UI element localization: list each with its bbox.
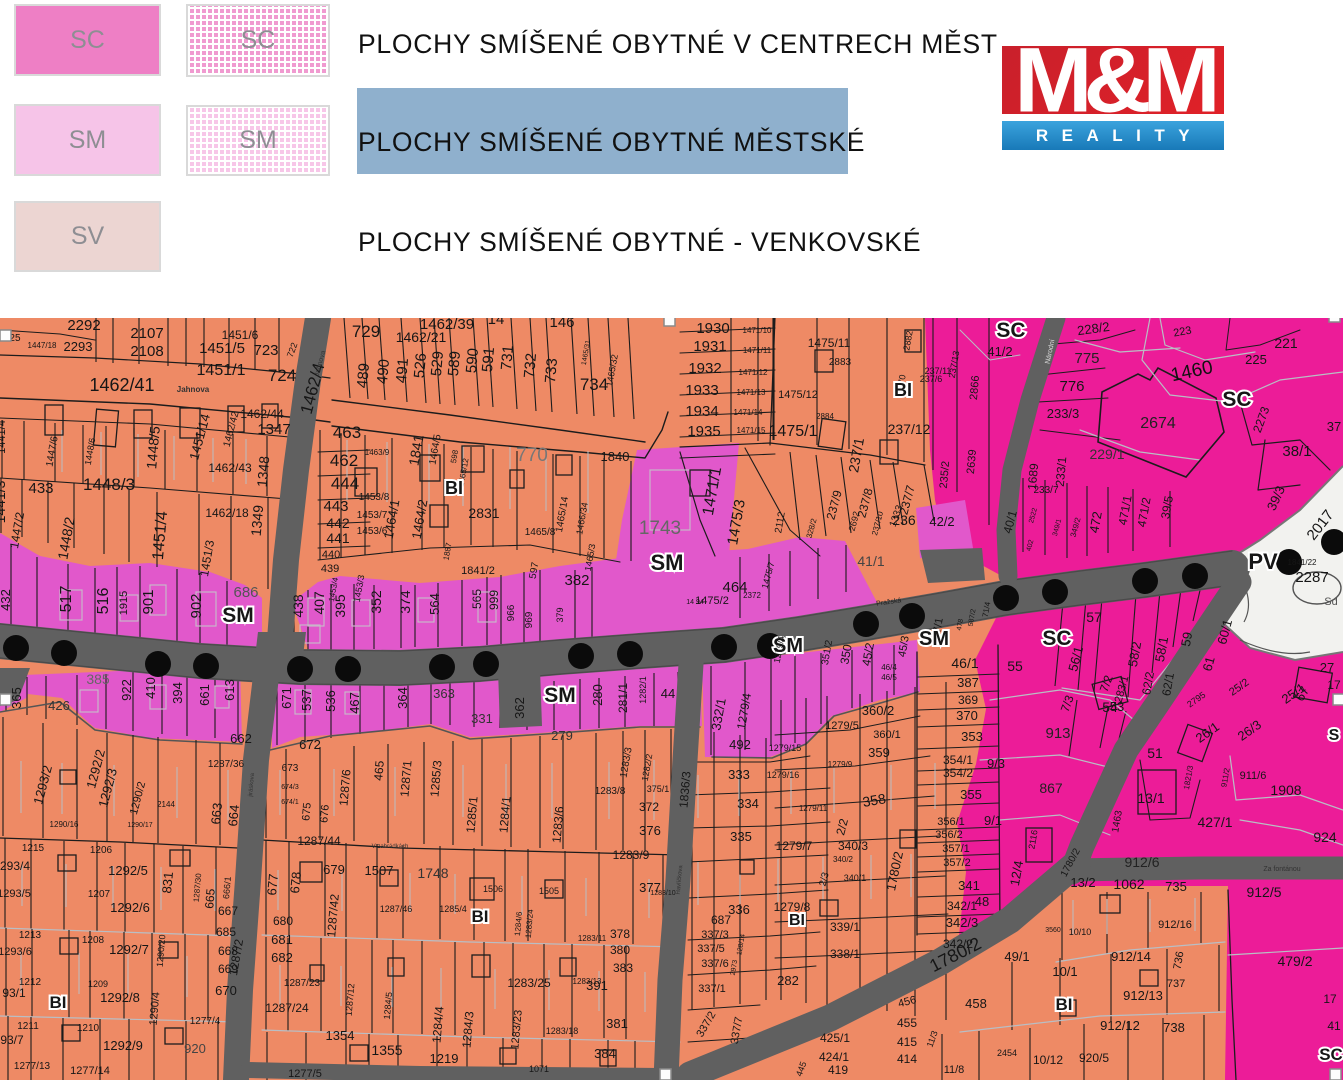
svg-text:731: 731 (498, 344, 517, 370)
svg-text:1283/9: 1283/9 (613, 848, 650, 862)
svg-text:491: 491 (393, 357, 412, 383)
svg-text:1283/10: 1283/10 (650, 890, 675, 897)
svg-text:1279/15: 1279/15 (769, 743, 802, 753)
svg-text:681: 681 (271, 932, 293, 947)
svg-text:738: 738 (1163, 1020, 1185, 1035)
svg-text:372: 372 (639, 800, 659, 814)
svg-text:340/3: 340/3 (838, 839, 868, 853)
svg-text:1277/14: 1277/14 (70, 1065, 110, 1077)
svg-text:1285/4: 1285/4 (439, 904, 467, 914)
svg-text:685: 685 (216, 925, 236, 939)
svg-text:357/1: 357/1 (942, 843, 970, 855)
svg-text:1211: 1211 (17, 1021, 39, 1032)
svg-text:9/1: 9/1 (984, 813, 1002, 828)
svg-text:1283/18: 1283/18 (546, 1026, 579, 1036)
svg-text:SC: SC (1042, 627, 1071, 650)
svg-text:17: 17 (1323, 992, 1337, 1006)
svg-text:1283/8: 1283/8 (595, 786, 626, 797)
svg-text:1933: 1933 (685, 382, 718, 399)
svg-text:686: 686 (233, 584, 258, 601)
svg-text:1465/8: 1465/8 (525, 527, 556, 538)
svg-text:1062: 1062 (1113, 876, 1144, 892)
svg-text:676: 676 (318, 804, 332, 823)
svg-text:536: 536 (323, 690, 338, 712)
svg-text:337/5: 337/5 (697, 943, 725, 955)
svg-text:13/1: 13/1 (1137, 790, 1164, 806)
svg-text:516: 516 (95, 588, 112, 615)
svg-text:359: 359 (868, 745, 890, 760)
svg-text:1213: 1213 (19, 930, 42, 941)
svg-text:334: 334 (737, 796, 759, 811)
svg-text:724: 724 (268, 366, 296, 385)
svg-text:1471/12: 1471/12 (739, 368, 768, 377)
svg-text:353: 353 (961, 729, 983, 744)
svg-text:374: 374 (397, 590, 413, 614)
svg-text:537: 537 (299, 689, 314, 711)
svg-text:2293: 2293 (64, 339, 93, 354)
svg-text:57: 57 (1086, 609, 1102, 625)
svg-text:381: 381 (606, 1016, 628, 1031)
svg-text:1462/18: 1462/18 (205, 506, 249, 520)
svg-text:10/10: 10/10 (1069, 927, 1092, 937)
svg-text:1915: 1915 (118, 591, 130, 615)
svg-text:1462/43: 1462/43 (208, 461, 252, 475)
svg-text:911/6: 911/6 (1240, 770, 1267, 782)
svg-text:517: 517 (58, 586, 75, 613)
svg-text:1471/14: 1471/14 (734, 408, 763, 417)
svg-text:27: 27 (1320, 660, 1334, 675)
svg-text:440: 440 (322, 549, 340, 561)
svg-text:1287/46: 1287/46 (380, 904, 413, 914)
svg-text:354/1: 354/1 (943, 753, 973, 767)
svg-text:59: 59 (1178, 631, 1195, 648)
svg-text:2454: 2454 (997, 1048, 1017, 1058)
svg-text:331: 331 (471, 711, 493, 726)
svg-text:337/6: 337/6 (701, 958, 729, 970)
svg-text:1293/5: 1293/5 (0, 888, 31, 900)
svg-text:1462/41: 1462/41 (89, 375, 154, 395)
svg-text:1932: 1932 (688, 360, 721, 377)
svg-text:737: 737 (1167, 978, 1185, 990)
svg-text:673: 673 (282, 763, 299, 774)
svg-text:913: 913 (1045, 725, 1070, 742)
svg-text:233/7: 233/7 (1033, 485, 1058, 496)
svg-text:SM: SM (544, 684, 576, 707)
svg-text:44: 44 (661, 686, 675, 701)
svg-text:677: 677 (264, 873, 281, 896)
svg-text:1451/5: 1451/5 (199, 340, 245, 357)
svg-text:1292/6: 1292/6 (110, 900, 150, 915)
svg-text:1290/17: 1290/17 (127, 822, 152, 829)
svg-text:370: 370 (956, 708, 978, 723)
svg-text:867: 867 (1039, 780, 1063, 796)
svg-text:333: 333 (728, 767, 750, 782)
svg-text:1441/3: 1441/3 (0, 480, 8, 523)
svg-text:2144: 2144 (157, 800, 175, 809)
svg-text:1505: 1505 (539, 886, 559, 896)
svg-text:663: 663 (208, 802, 225, 825)
svg-text:10/12: 10/12 (1033, 1053, 1063, 1067)
svg-text:912/16: 912/16 (1158, 919, 1192, 931)
svg-text:37: 37 (1327, 419, 1341, 434)
svg-text:1463/9: 1463/9 (365, 448, 390, 457)
svg-text:425/1: 425/1 (820, 1031, 850, 1045)
svg-text:14: 14 (488, 318, 505, 328)
svg-text:455: 455 (897, 1016, 917, 1030)
svg-text:SC: SC (1319, 1045, 1343, 1064)
svg-text:1471/13: 1471/13 (737, 388, 766, 397)
svg-text:920: 920 (184, 1041, 206, 1056)
svg-text:BI: BI (50, 993, 67, 1012)
svg-text:14 94: 14 94 (686, 599, 704, 606)
svg-text:1506: 1506 (483, 884, 503, 894)
svg-text:338/1: 338/1 (830, 947, 860, 961)
svg-text:1283/13: 1283/13 (573, 977, 602, 986)
svg-text:V zahrádkách: V zahrádkách (372, 844, 409, 850)
svg-text:1471/11: 1471/11 (743, 346, 772, 355)
svg-text:1208: 1208 (82, 935, 105, 946)
svg-text:732: 732 (521, 352, 540, 378)
svg-text:233/3: 233/3 (1047, 406, 1080, 421)
svg-text:1293/6: 1293/6 (0, 946, 32, 958)
svg-text:662: 662 (230, 731, 252, 746)
svg-text:1209: 1209 (88, 979, 108, 989)
svg-text:13/2: 13/2 (1070, 875, 1095, 890)
svg-text:280: 280 (590, 684, 605, 706)
svg-text:385: 385 (86, 671, 110, 687)
svg-text:665: 665 (202, 888, 218, 909)
svg-text:901: 901 (140, 589, 157, 614)
svg-text:902: 902 (188, 593, 205, 618)
svg-text:678: 678 (287, 871, 304, 894)
svg-text:675: 675 (300, 802, 314, 821)
svg-text:489: 489 (354, 362, 373, 388)
svg-text:1207: 1207 (88, 889, 111, 900)
svg-text:969: 969 (524, 611, 535, 628)
svg-text:1279/5: 1279/5 (825, 720, 859, 732)
svg-text:2372: 2372 (743, 591, 761, 600)
svg-text:1448/3: 1448/3 (83, 475, 135, 494)
svg-text:770: 770 (516, 445, 548, 466)
svg-text:687: 687 (711, 913, 731, 927)
svg-text:1451/1: 1451/1 (197, 362, 246, 379)
svg-text:394: 394 (170, 682, 185, 704)
svg-text:432: 432 (0, 589, 13, 611)
svg-text:920/5: 920/5 (1079, 1051, 1109, 1065)
svg-text:1283/25: 1283/25 (507, 976, 551, 990)
svg-text:93/1: 93/1 (2, 986, 26, 1000)
svg-text:2674: 2674 (1140, 415, 1176, 432)
svg-text:1277/13: 1277/13 (14, 1061, 51, 1072)
svg-text:337/3: 337/3 (701, 929, 729, 941)
svg-text:341: 341 (958, 878, 980, 893)
svg-text:342/3: 342/3 (946, 915, 979, 930)
svg-text:378: 378 (610, 927, 630, 941)
svg-text:1215: 1215 (22, 843, 45, 854)
svg-text:41/2: 41/2 (987, 344, 1012, 359)
svg-text:369: 369 (958, 693, 978, 707)
svg-text:387: 387 (957, 675, 979, 690)
svg-text:336: 336 (728, 902, 750, 917)
svg-text:427/1: 427/1 (1197, 814, 1232, 830)
svg-text:9/3: 9/3 (987, 756, 1005, 771)
svg-text:733: 733 (542, 357, 561, 383)
svg-text:831: 831 (159, 871, 176, 894)
svg-text:46/1: 46/1 (951, 655, 978, 671)
svg-text:674/1: 674/1 (281, 799, 299, 806)
svg-text:426: 426 (48, 698, 70, 713)
svg-text:912/12: 912/12 (1100, 1018, 1140, 1033)
svg-text:912/14: 912/14 (1111, 949, 1151, 964)
svg-text:458: 458 (965, 996, 987, 1011)
svg-text:729: 729 (352, 322, 380, 341)
svg-text:1287/24: 1287/24 (265, 1001, 309, 1015)
svg-text:439: 439 (321, 563, 339, 575)
svg-text:565: 565 (470, 589, 484, 609)
svg-text:354/2: 354/2 (943, 766, 973, 780)
svg-text:410: 410 (143, 677, 158, 699)
svg-text:46/5: 46/5 (881, 673, 897, 682)
svg-text:1462/21: 1462/21 (396, 329, 447, 345)
svg-text:2883: 2883 (829, 357, 852, 368)
svg-text:414: 414 (897, 1052, 917, 1066)
svg-text:384: 384 (594, 1046, 616, 1061)
svg-text:SM: SM (222, 604, 254, 627)
svg-text:BI: BI (445, 478, 463, 498)
svg-text:1475/1: 1475/1 (769, 423, 818, 440)
svg-text:419: 419 (828, 1063, 848, 1077)
svg-text:BI: BI (894, 380, 912, 400)
svg-text:380: 380 (610, 943, 630, 957)
svg-text:1471/10: 1471/10 (743, 326, 772, 335)
svg-text:966: 966 (506, 604, 517, 621)
svg-text:236: 236 (892, 512, 916, 528)
svg-text:667: 667 (218, 904, 238, 918)
svg-text:1292/7: 1292/7 (109, 942, 149, 957)
svg-text:591: 591 (479, 346, 498, 372)
svg-text:912/5: 912/5 (1246, 884, 1281, 900)
svg-text:146: 146 (549, 318, 574, 331)
svg-text:1475/11: 1475/11 (808, 336, 851, 350)
svg-text:424/1: 424/1 (819, 1050, 849, 1064)
svg-text:10/1: 10/1 (1052, 964, 1077, 979)
svg-text:337/1: 337/1 (698, 983, 726, 995)
svg-text:1475/12: 1475/12 (778, 389, 818, 401)
svg-text:775: 775 (1074, 350, 1099, 367)
svg-text:1279/7: 1279/7 (776, 839, 813, 853)
svg-text:360/1: 360/1 (873, 729, 901, 741)
svg-text:Jahnova: Jahnova (177, 385, 210, 394)
svg-text:465: 465 (371, 760, 387, 781)
svg-text:Sd: Sd (1324, 596, 1337, 608)
svg-text:1935: 1935 (687, 423, 720, 440)
svg-text:672: 672 (299, 737, 321, 752)
svg-text:1462/44: 1462/44 (240, 407, 284, 421)
svg-text:1447/18: 1447/18 (28, 341, 57, 350)
svg-text:776: 776 (1059, 378, 1084, 395)
svg-text:1931: 1931 (693, 338, 726, 355)
svg-text:BI: BI (1056, 995, 1073, 1014)
svg-text:492: 492 (729, 737, 751, 752)
svg-text:383: 383 (613, 961, 633, 975)
svg-text:335: 335 (730, 829, 752, 844)
svg-text:467: 467 (347, 692, 362, 714)
svg-text:1471/15: 1471/15 (737, 426, 766, 435)
svg-text:BI: BI (472, 907, 489, 926)
svg-text:2292: 2292 (67, 318, 100, 334)
svg-text:1453/8: 1453/8 (359, 492, 390, 503)
svg-text:1277/4: 1277/4 (190, 1016, 221, 1027)
svg-text:441: 441 (326, 530, 350, 546)
svg-text:41/1: 41/1 (857, 553, 884, 569)
svg-text:225: 225 (1245, 352, 1267, 367)
svg-text:356/1: 356/1 (937, 816, 965, 828)
svg-text:2287: 2287 (1295, 569, 1328, 586)
svg-text:379: 379 (555, 607, 565, 622)
svg-text:1348: 1348 (254, 455, 273, 488)
svg-text:1287/23: 1287/23 (284, 978, 321, 989)
svg-text:279: 279 (551, 728, 573, 743)
svg-text:1210: 1210 (77, 1023, 100, 1034)
svg-text:221: 221 (1274, 335, 1298, 351)
svg-text:2639: 2639 (965, 449, 979, 474)
svg-text:1292/9: 1292/9 (103, 1038, 143, 1053)
svg-text:1743: 1743 (639, 518, 681, 539)
svg-text:363: 363 (433, 686, 455, 701)
svg-text:2866: 2866 (968, 375, 982, 400)
svg-text:682: 682 (271, 950, 293, 965)
svg-text:463: 463 (333, 423, 361, 442)
svg-text:233/1: 233/1 (1053, 456, 1070, 487)
svg-text:661: 661 (197, 684, 212, 706)
svg-text:362: 362 (512, 697, 527, 719)
svg-text:360/2: 360/2 (862, 703, 895, 718)
svg-text:3560: 3560 (1045, 927, 1061, 934)
svg-text:462: 462 (330, 451, 358, 470)
svg-text:666/1: 666/1 (221, 876, 233, 899)
svg-text:1934: 1934 (685, 403, 718, 420)
svg-text:352: 352 (368, 590, 384, 614)
svg-text:364: 364 (395, 687, 410, 709)
svg-text:490: 490 (374, 358, 393, 384)
svg-text:1840: 1840 (601, 449, 630, 464)
svg-text:340/2: 340/2 (833, 855, 854, 864)
svg-text:237/12: 237/12 (888, 421, 931, 437)
svg-text:357/2: 357/2 (943, 857, 971, 869)
svg-text:339/1: 339/1 (830, 920, 860, 934)
svg-text:1277/5: 1277/5 (288, 1068, 322, 1080)
svg-text:1287/36: 1287/36 (208, 759, 245, 770)
svg-text:1441/4: 1441/4 (0, 420, 8, 454)
svg-text:1349: 1349 (248, 504, 267, 537)
svg-text:1287/44: 1287/44 (297, 834, 341, 848)
svg-text:1279/9: 1279/9 (828, 760, 853, 769)
svg-text:1279/11: 1279/11 (799, 804, 828, 813)
svg-text:1354: 1354 (326, 1028, 355, 1043)
svg-text:2108: 2108 (130, 343, 163, 360)
svg-text:1279/16: 1279/16 (767, 770, 800, 780)
svg-text:281/1: 281/1 (616, 683, 630, 713)
svg-text:433: 433 (28, 480, 53, 497)
svg-text:375/1: 375/1 (647, 784, 670, 794)
svg-text:342/1: 342/1 (947, 899, 977, 913)
svg-text:PV: PV (1248, 549, 1278, 574)
svg-text:395: 395 (332, 594, 348, 618)
svg-text:S: S (1329, 727, 1340, 744)
svg-text:1290/16: 1290/16 (50, 820, 79, 829)
svg-text:2831: 2831 (468, 505, 499, 521)
svg-text:1283/11: 1283/11 (578, 934, 607, 943)
svg-text:442: 442 (326, 515, 350, 531)
svg-text:912/6: 912/6 (1124, 854, 1159, 870)
svg-text:444: 444 (331, 474, 359, 493)
svg-text:17: 17 (1327, 678, 1341, 692)
svg-text:SM: SM (919, 628, 949, 650)
svg-text:229/1: 229/1 (1089, 446, 1124, 462)
svg-text:340/1: 340/1 (844, 873, 867, 883)
svg-text:912/13: 912/13 (1123, 988, 1163, 1003)
svg-text:SC: SC (996, 319, 1025, 342)
svg-text:376: 376 (639, 823, 661, 838)
svg-text:1908: 1908 (1270, 782, 1301, 798)
svg-text:1841/2: 1841/2 (461, 565, 495, 577)
svg-text:1841/22: 1841/22 (1288, 558, 1317, 567)
svg-text:671: 671 (279, 687, 294, 709)
svg-text:438: 438 (290, 594, 306, 618)
svg-text:723: 723 (253, 342, 278, 359)
svg-text:2107: 2107 (130, 325, 163, 342)
svg-text:355: 355 (960, 787, 982, 802)
svg-text:46/4: 46/4 (881, 663, 897, 672)
svg-text:11/8: 11/8 (944, 1064, 965, 1076)
svg-text:680: 680 (273, 914, 293, 928)
svg-text:356/2: 356/2 (935, 829, 963, 841)
svg-text:53: 53 (1110, 699, 1124, 714)
svg-text:589: 589 (445, 350, 464, 376)
svg-text:SM: SM (651, 550, 684, 575)
svg-text:38/1: 38/1 (1282, 443, 1311, 460)
svg-text:SC: SC (1222, 388, 1251, 411)
svg-text:49/1: 49/1 (1004, 949, 1029, 964)
svg-text:1748: 1748 (417, 865, 448, 881)
svg-text:1347: 1347 (257, 421, 290, 438)
svg-text:Za fontánou: Za fontánou (1263, 866, 1300, 873)
svg-text:41: 41 (1327, 1019, 1341, 1033)
svg-text:1282/1: 1282/1 (638, 676, 648, 704)
svg-text:479/2: 479/2 (1277, 953, 1312, 969)
svg-text:1071: 1071 (529, 1064, 549, 1074)
svg-text:1206: 1206 (90, 845, 113, 856)
svg-text:1930: 1930 (696, 320, 729, 337)
svg-text:674/3: 674/3 (281, 784, 299, 791)
svg-text:999: 999 (487, 590, 501, 610)
svg-text:1292/5: 1292/5 (108, 863, 148, 878)
svg-text:679: 679 (323, 862, 345, 877)
svg-text:407: 407 (311, 591, 327, 615)
svg-text:922: 922 (119, 679, 134, 701)
svg-text:564: 564 (427, 593, 442, 615)
svg-text:1219: 1219 (430, 1051, 459, 1066)
svg-text:415: 415 (897, 1035, 917, 1049)
svg-text:2884: 2884 (816, 412, 834, 421)
svg-text:613: 613 (222, 679, 237, 701)
svg-text:1507: 1507 (365, 863, 394, 878)
svg-text:51: 51 (1147, 745, 1163, 761)
svg-text:235/2: 235/2 (938, 461, 952, 489)
svg-text:735: 735 (1165, 879, 1187, 894)
svg-text:293/4: 293/4 (0, 859, 30, 873)
svg-text:670: 670 (215, 983, 237, 998)
